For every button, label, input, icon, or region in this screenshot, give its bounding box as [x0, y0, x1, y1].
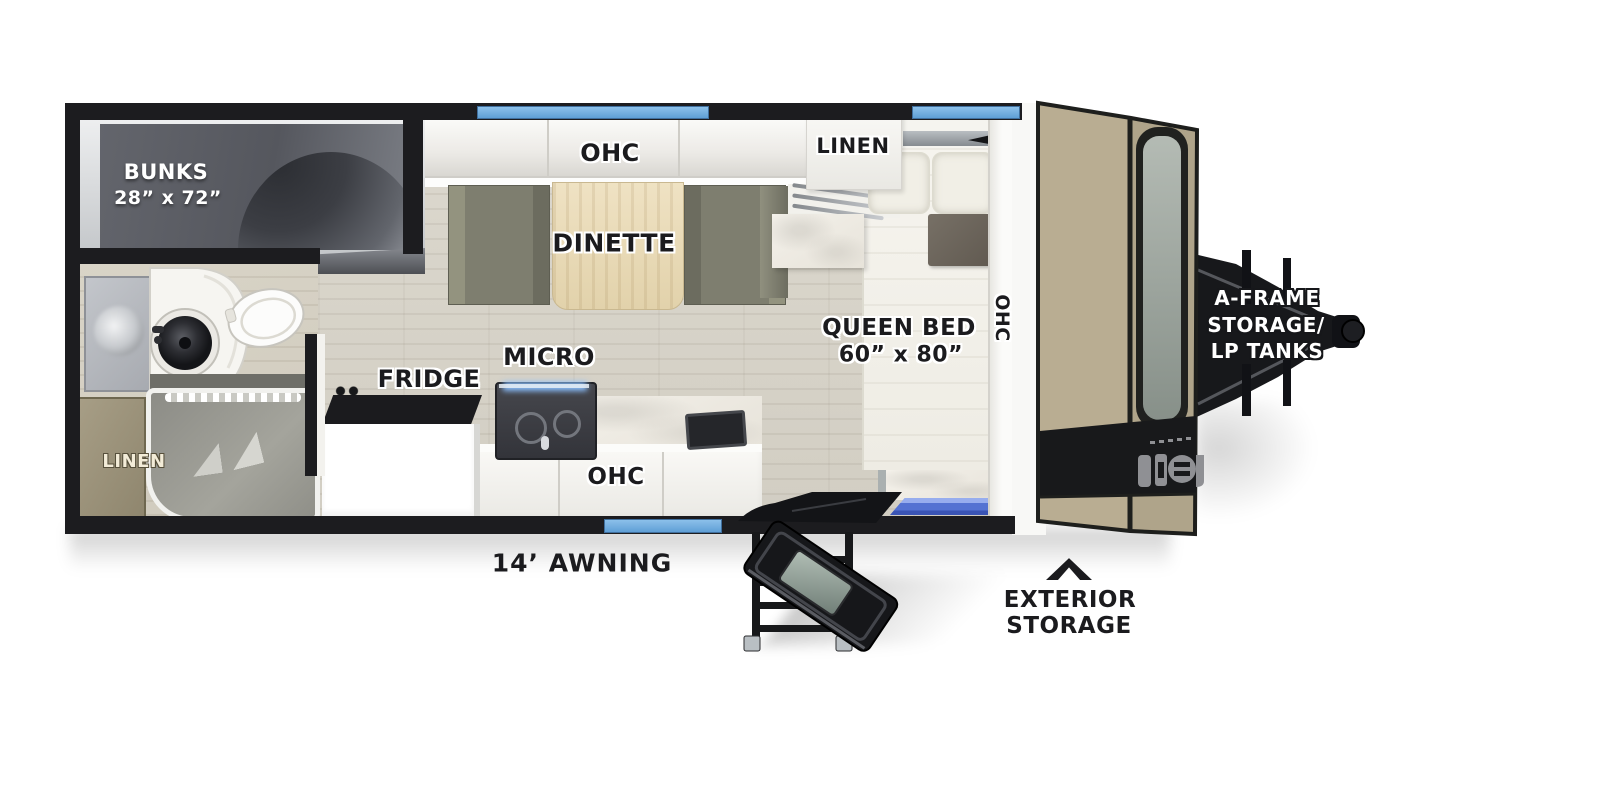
- aframe-label-1: A-FRAME: [1214, 286, 1319, 310]
- floorplan-canvas: LINEN: [0, 0, 1600, 812]
- shower: [146, 388, 320, 522]
- stove-knob: [541, 436, 549, 450]
- entry-assembly: [680, 468, 940, 688]
- cabinet-seam: [547, 118, 549, 176]
- window-top-right: [912, 106, 1020, 119]
- queen-bed-dims-label: 60” x 80”: [839, 343, 963, 368]
- bath-partition-edge: [317, 334, 325, 476]
- cabinet-seam: [678, 118, 680, 176]
- shower-door-track: [165, 393, 301, 402]
- dinette-label: DINETTE: [552, 229, 675, 258]
- bunks-label: BUNKS: [124, 160, 209, 184]
- bunk-room-bottom-wall: [80, 248, 320, 264]
- linen-bedroom-label: LINEN: [816, 134, 889, 158]
- stove: [495, 382, 597, 460]
- cabinet-seam: [662, 452, 664, 524]
- bunk-room-right-wall: [403, 104, 423, 254]
- window-top-left: [477, 106, 709, 119]
- bedroom-nightstand: [772, 214, 864, 268]
- bunks-dims-label: 28” x 72”: [114, 187, 222, 209]
- ohc-kitchen-label: OHC: [587, 464, 644, 490]
- rear-wall: [65, 103, 80, 534]
- ohc-dinette-label: OHC: [580, 139, 640, 167]
- exterior-storage-label-1: EXTERIOR: [1004, 587, 1136, 613]
- aframe-label-3: LP TANKS: [1211, 339, 1324, 363]
- queen-bed-label: QUEEN BED: [822, 315, 976, 341]
- kitchen-sink: [685, 410, 747, 450]
- hitch-ball: [1342, 320, 1364, 342]
- fridge-label: FRIDGE: [378, 365, 481, 393]
- fridge-handles: [334, 386, 360, 396]
- bed-pillow-right: [932, 152, 994, 214]
- bunk-dome-graphic: [238, 152, 406, 250]
- bath-sink: [151, 309, 219, 377]
- burner-right: [553, 410, 581, 438]
- micro-label: MICRO: [503, 343, 595, 371]
- dinette-bench-left: [448, 185, 550, 305]
- front-cap-body: [1038, 103, 1204, 534]
- fridge-top: [322, 395, 482, 425]
- awning-label: 14’ AWNING: [492, 549, 672, 578]
- cabinet-seam: [558, 452, 560, 524]
- fridge-body: [322, 424, 480, 516]
- lp-tank-post: [1242, 364, 1251, 416]
- aframe-label-2: STORAGE/: [1207, 313, 1324, 337]
- front-window-glass: [1143, 136, 1181, 420]
- lp-tank-post: [1283, 360, 1291, 406]
- ohc-bedroom-label: OHC: [991, 294, 1013, 342]
- shower-seat-1: [189, 443, 223, 477]
- entry-door-open-inside: [738, 492, 902, 523]
- shower-seat-2: [226, 432, 265, 471]
- bath-partition-wall: [305, 334, 317, 476]
- exterior-storage-label-2: STORAGE: [1006, 613, 1131, 639]
- linen-bath-label: LINEN: [102, 453, 115, 471]
- stove-top-edge: [499, 384, 589, 388]
- entry-door-open-outside: [741, 519, 900, 654]
